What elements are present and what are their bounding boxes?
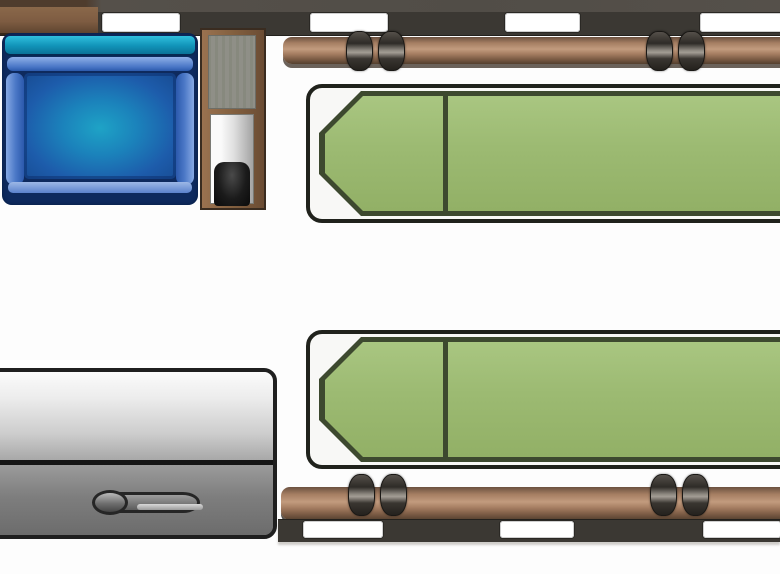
door-handle	[92, 490, 200, 516]
washstand-cabinet	[200, 28, 266, 210]
mattress-head-divider	[443, 91, 448, 216]
stretcher-wheel	[346, 31, 373, 71]
stretcher-wheel	[380, 474, 407, 516]
basin	[214, 162, 250, 206]
window-bottom-3	[703, 521, 780, 538]
window-top-3	[505, 13, 580, 32]
storage-box	[0, 368, 277, 539]
seat-backrest	[5, 36, 195, 54]
box-lid	[0, 372, 273, 460]
vehicle-floor-plan	[0, 0, 780, 574]
stretcher-wheel	[646, 31, 673, 71]
window-top-4	[700, 13, 780, 32]
window-top-2	[310, 13, 388, 32]
seat-armrest-left	[6, 73, 24, 185]
window-top-1	[102, 13, 180, 32]
seat-top-roll	[7, 57, 193, 71]
stretcher-lower	[306, 330, 780, 469]
mattress-head-divider	[443, 337, 448, 462]
handle-cap	[92, 490, 128, 515]
stretcher-wheel	[678, 31, 705, 71]
seat-armrest-right	[176, 73, 194, 185]
handle-highlight	[137, 504, 203, 510]
counter-top	[208, 35, 256, 109]
window-bottom-1	[303, 521, 383, 538]
mattress	[325, 342, 780, 457]
seat-bottom-roll	[8, 182, 192, 193]
mattress-border	[319, 91, 780, 216]
top-wall-cabinet-segment	[0, 7, 98, 35]
mattress-border	[319, 337, 780, 462]
attendant-seat	[2, 33, 198, 205]
stretcher-wheel	[348, 474, 375, 516]
stretcher-wheel	[378, 31, 405, 71]
stretcher-wheel	[650, 474, 677, 516]
window-bottom-2	[500, 521, 574, 538]
stretcher-upper	[306, 84, 780, 223]
seat-cushion	[24, 73, 176, 179]
mattress	[325, 96, 780, 211]
stretcher-wheel	[682, 474, 709, 516]
